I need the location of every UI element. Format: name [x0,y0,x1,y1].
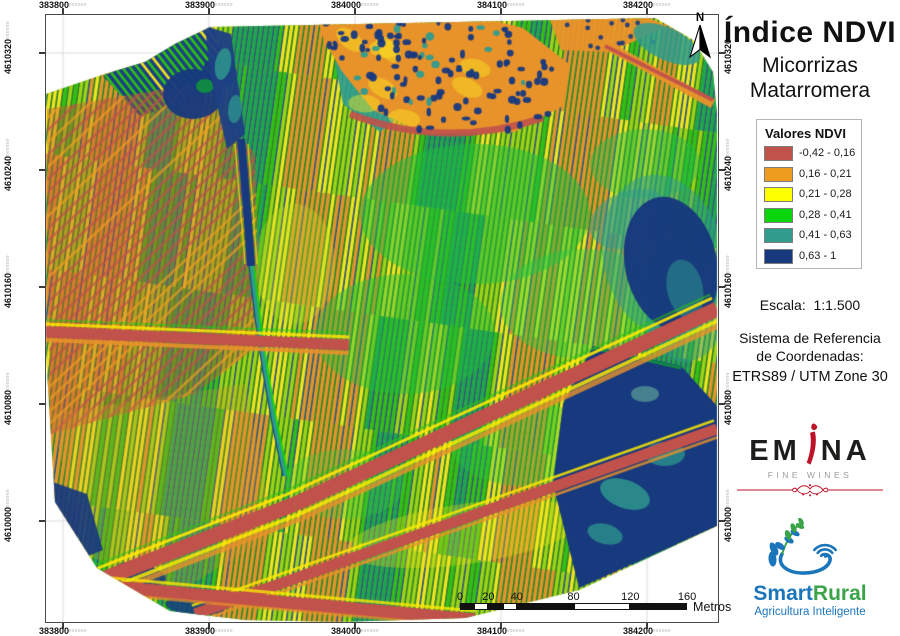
smartrural-logo: SmartRural Agricultura Inteligente [720,518,900,618]
legend-swatch [764,146,793,161]
smartrural-tagline: Agricultura Inteligente [720,606,900,618]
emina-flourish-icon [720,482,900,503]
grid-label-left: 4610000000000 [3,498,13,542]
grid-label-left: 4610240000000 [3,147,13,191]
scalebar-segment [630,603,687,610]
grid-label-bottom: 384100000000 [477,626,525,636]
grid-tick-left [39,520,45,522]
emina-wordmark: EM NA [720,430,900,466]
legend-swatch [764,249,793,264]
grid-label-top: 384000000000 [331,0,379,10]
grid-tick-left [39,403,45,405]
legend-item: 0,41 - 0,63 [757,228,861,243]
emina-letters-left: EM [749,437,801,466]
grid-label-bottom: 383900000000 [185,626,233,636]
scalebar-segment [574,603,631,610]
legend-box: Valores NDVI -0,42 - 0,160,16 - 0,210,21… [756,119,862,269]
emina-logo: EM NA FINE WINES [720,430,900,503]
scalebar-segment [474,603,488,610]
legend-class-label: 0,21 - 0,28 [799,188,852,200]
legend-item: 0,16 - 0,21 [757,167,861,182]
grid-tick-left [39,169,45,171]
legend-swatch [764,167,793,182]
grid-label-left: 4610080000000 [3,381,13,425]
legend-class-label: -0,42 - 0,16 [799,147,855,159]
page-title: Índice NDVI [720,16,900,50]
legend-item: -0,42 - 0,16 [757,146,861,161]
legend-class-label: 0,16 - 0,21 [799,168,852,180]
legend-item: 0,21 - 0,28 [757,187,861,202]
grid-label-top: 384200000000 [623,0,671,10]
scalebar-segment [503,603,517,610]
smartrural-word-rural: Rural [813,582,867,605]
grid-label-bottom: 384200000000 [623,626,671,636]
legend-item: 0,28 - 0,41 [757,208,861,223]
grid-label-top: 383900000000 [185,0,233,10]
grid-label-bottom: 384000000000 [331,626,379,636]
scalebar-segment [517,603,574,610]
page-subtitle-line2: Matarromera [720,79,900,103]
grid-tick-left [39,286,45,288]
smartrural-word-smart: Smart [753,582,813,605]
scalebar-tick-label: 80 [567,591,579,603]
legend-class-label: 0,41 - 0,63 [799,229,852,241]
grid-label-top: 384100000000 [477,0,525,10]
north-arrow-right-half [700,25,710,57]
legend-class-label: 0,63 - 1 [799,250,836,262]
grid-tick-left [39,52,45,54]
grid-label-left: 4610320000000 [3,30,13,74]
legend-swatch [764,228,793,243]
grid-label-bottom: 383800000000 [39,626,87,636]
emina-wine-stroke-icon [801,422,821,466]
scalebar-segment [460,603,474,610]
scale-text: Escala: 1:1.500 [720,297,900,313]
legend-item: 0,63 - 1 [757,249,861,264]
legend-title: Valores NDVI [765,126,846,141]
legend-swatch [764,187,793,202]
grid-label-right: 4610080000000 [723,381,733,425]
legend-swatch [764,208,793,223]
north-label: N [696,12,704,24]
map-layout-page: 3838000000003838000000003839000000003839… [0,0,900,636]
scalebar-tick-label: 120 [621,591,639,603]
crs-line3: ETRS89 / UTM Zone 30 [720,369,900,385]
grid-label-top: 383800000000 [39,0,87,10]
north-arrow-icon: N [683,10,717,62]
grid-label-left: 4610160000000 [3,264,13,308]
emina-tagline: FINE WINES [720,470,900,480]
map-view [45,14,719,623]
crs-line1: Sistema de Referencia [720,330,900,346]
scalebar-segment [488,603,502,610]
scalebar-tick-label: 40 [511,591,523,603]
emina-letters-right: NA [821,437,871,466]
ndvi-raster-image [45,14,719,623]
legend-class-label: 0,28 - 0,41 [799,209,852,221]
north-arrow-left-half [690,25,700,57]
scalebar-tick-label: 0 [457,591,463,603]
page-subtitle-line1: Micorrizas [720,54,900,78]
smartrural-icon [766,518,854,576]
scalebar-tick-label: 20 [482,591,494,603]
smartrural-wordmark: SmartRural [720,583,900,604]
crs-line2: de Coordenadas: [720,348,900,364]
grid-label-right: 4610240000000 [723,147,733,191]
